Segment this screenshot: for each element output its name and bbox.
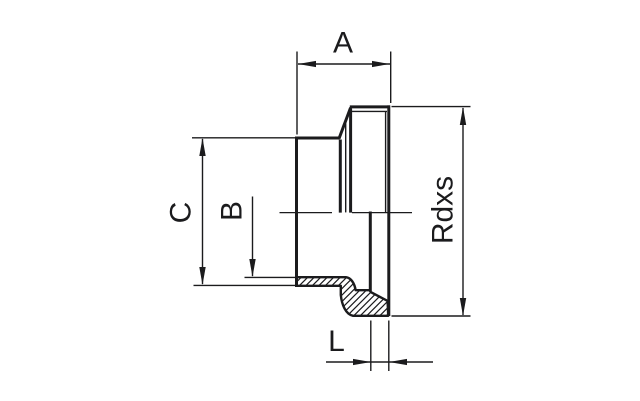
technical-drawing-canvas: A C B Rdxs L bbox=[0, 0, 640, 401]
dim-label-c: C bbox=[165, 202, 198, 224]
dim-label-a: A bbox=[333, 27, 353, 60]
drawing-background bbox=[0, 0, 640, 401]
dim-label-thread: Rdxs bbox=[427, 176, 460, 244]
drawing-page: A C B Rdxs L bbox=[0, 0, 640, 401]
dim-label-b: B bbox=[216, 201, 249, 221]
dim-label-l: L bbox=[328, 325, 345, 358]
